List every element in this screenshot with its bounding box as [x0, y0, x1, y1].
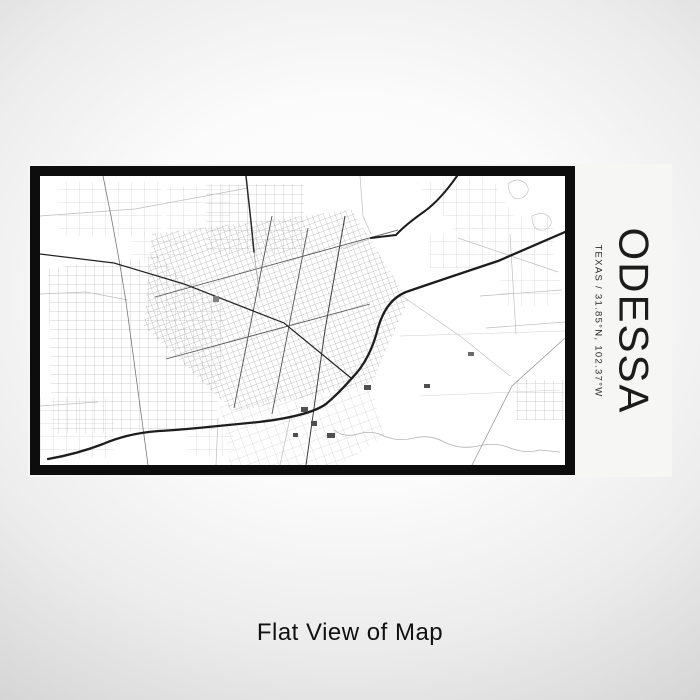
map-grid-patches	[40, 178, 564, 465]
view-caption: Flat View of Map	[0, 619, 700, 647]
label-side-panel: ODESSA TEXAS / 31.85°N, 102.37°W	[575, 164, 672, 477]
city-title: ODESSA	[613, 227, 655, 414]
product-image: ODESSA TEXAS / 31.85°N, 102.37°W Flat Vi…	[0, 0, 700, 700]
rotated-text-block: ODESSA TEXAS / 31.85°N, 102.37°W	[593, 227, 655, 414]
city-subtitle: TEXAS / 31.85°N, 102.37°W	[593, 227, 604, 414]
map-print-flat: ODESSA TEXAS / 31.85°N, 102.37°W	[28, 164, 672, 477]
map-frame	[30, 166, 575, 475]
map-area	[40, 176, 565, 465]
odessa-map-svg	[40, 176, 565, 465]
